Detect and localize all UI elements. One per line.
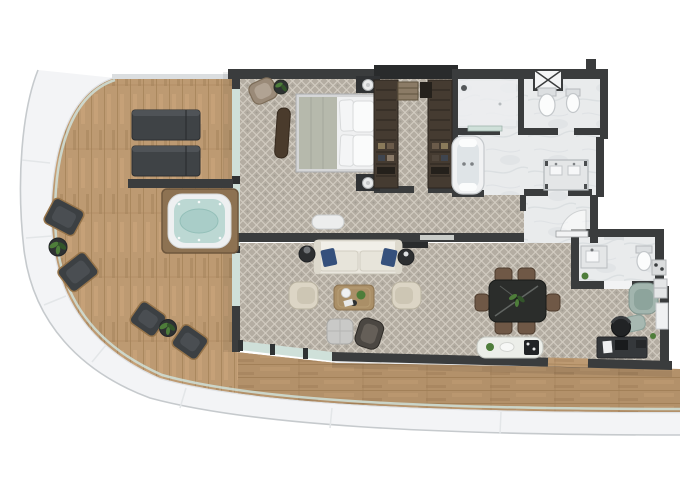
sink	[550, 166, 562, 175]
balustrade-post	[270, 344, 275, 355]
service-shaft	[534, 70, 562, 90]
closet-cabinet	[420, 82, 432, 98]
bathtub	[452, 136, 484, 194]
sliding-door-track	[420, 235, 454, 240]
plant-side-table	[274, 80, 288, 94]
pillow	[353, 101, 374, 132]
toilet-door-gap	[558, 128, 574, 135]
foot-bench	[312, 215, 344, 229]
sink	[586, 251, 599, 262]
armchair	[289, 282, 318, 309]
left-wall-seg	[232, 69, 240, 91]
laptop	[615, 340, 628, 350]
dining-table	[489, 280, 546, 322]
terrace-door-opening	[548, 358, 588, 368]
desk-chair	[612, 317, 631, 336]
wardrobe	[374, 80, 398, 188]
plant	[650, 333, 656, 339]
tub-pillow	[459, 139, 477, 147]
guest-bath-door	[604, 281, 632, 289]
guest-vanity	[581, 246, 607, 268]
desk-accessory	[636, 340, 646, 348]
sun-lounger	[132, 146, 200, 176]
credenza	[477, 337, 543, 358]
closet-top-wall	[374, 65, 458, 79]
end-table-lamp	[398, 249, 414, 265]
tub-faucet	[462, 162, 466, 166]
guest-bath-left-wall	[571, 237, 579, 283]
dish	[342, 289, 351, 298]
toilet-room-right-wall	[600, 69, 608, 139]
suite-floor-plan	[0, 0, 680, 486]
bedroom-terrace-glass-door	[232, 89, 240, 179]
shower-glass-door	[468, 126, 502, 131]
armchair	[392, 282, 421, 309]
chaise-bench	[274, 108, 290, 159]
hall-left-stub	[520, 195, 526, 211]
shower-door-gap	[500, 128, 518, 135]
end-table-lamp	[299, 246, 315, 262]
vanity-console	[544, 160, 588, 190]
tall-cabinet	[656, 303, 668, 329]
balustrade-post	[238, 340, 243, 351]
plant	[357, 291, 366, 300]
dining-chair	[546, 294, 560, 311]
terrace-privacy-wall	[128, 179, 233, 188]
terrace-top-rail	[112, 74, 236, 79]
hot-tub	[162, 189, 238, 253]
bidet	[566, 89, 580, 113]
bar-tray	[524, 340, 539, 355]
floor-plan-canvas	[0, 0, 680, 486]
sink	[568, 166, 580, 175]
plant-side-table	[48, 238, 67, 256]
living-terrace-glass-door	[232, 253, 240, 306]
sofa	[314, 240, 402, 274]
plant	[486, 343, 494, 351]
dining-chair	[475, 294, 489, 311]
pillow	[353, 135, 374, 166]
balustrade-post	[303, 348, 308, 359]
toilet	[538, 88, 556, 116]
pillow	[339, 100, 355, 132]
shower-toilet-wall	[518, 75, 524, 132]
pillow	[339, 135, 355, 167]
papers	[602, 341, 612, 354]
luggage-bench	[398, 82, 418, 100]
towel-rail	[604, 237, 624, 240]
dish	[500, 343, 514, 352]
bed-throw	[299, 97, 337, 169]
wall-stub	[586, 59, 596, 71]
shower-head	[461, 85, 467, 91]
coffee-table	[334, 285, 374, 310]
dressing-right-wall	[596, 137, 604, 197]
ottoman	[327, 319, 353, 344]
sun-lounger	[132, 110, 200, 140]
entry-door	[556, 231, 588, 237]
glass-post	[232, 176, 240, 184]
tub-pillow	[459, 183, 477, 191]
shower-drain	[499, 103, 502, 106]
toilet	[636, 246, 652, 271]
plant	[582, 273, 589, 280]
